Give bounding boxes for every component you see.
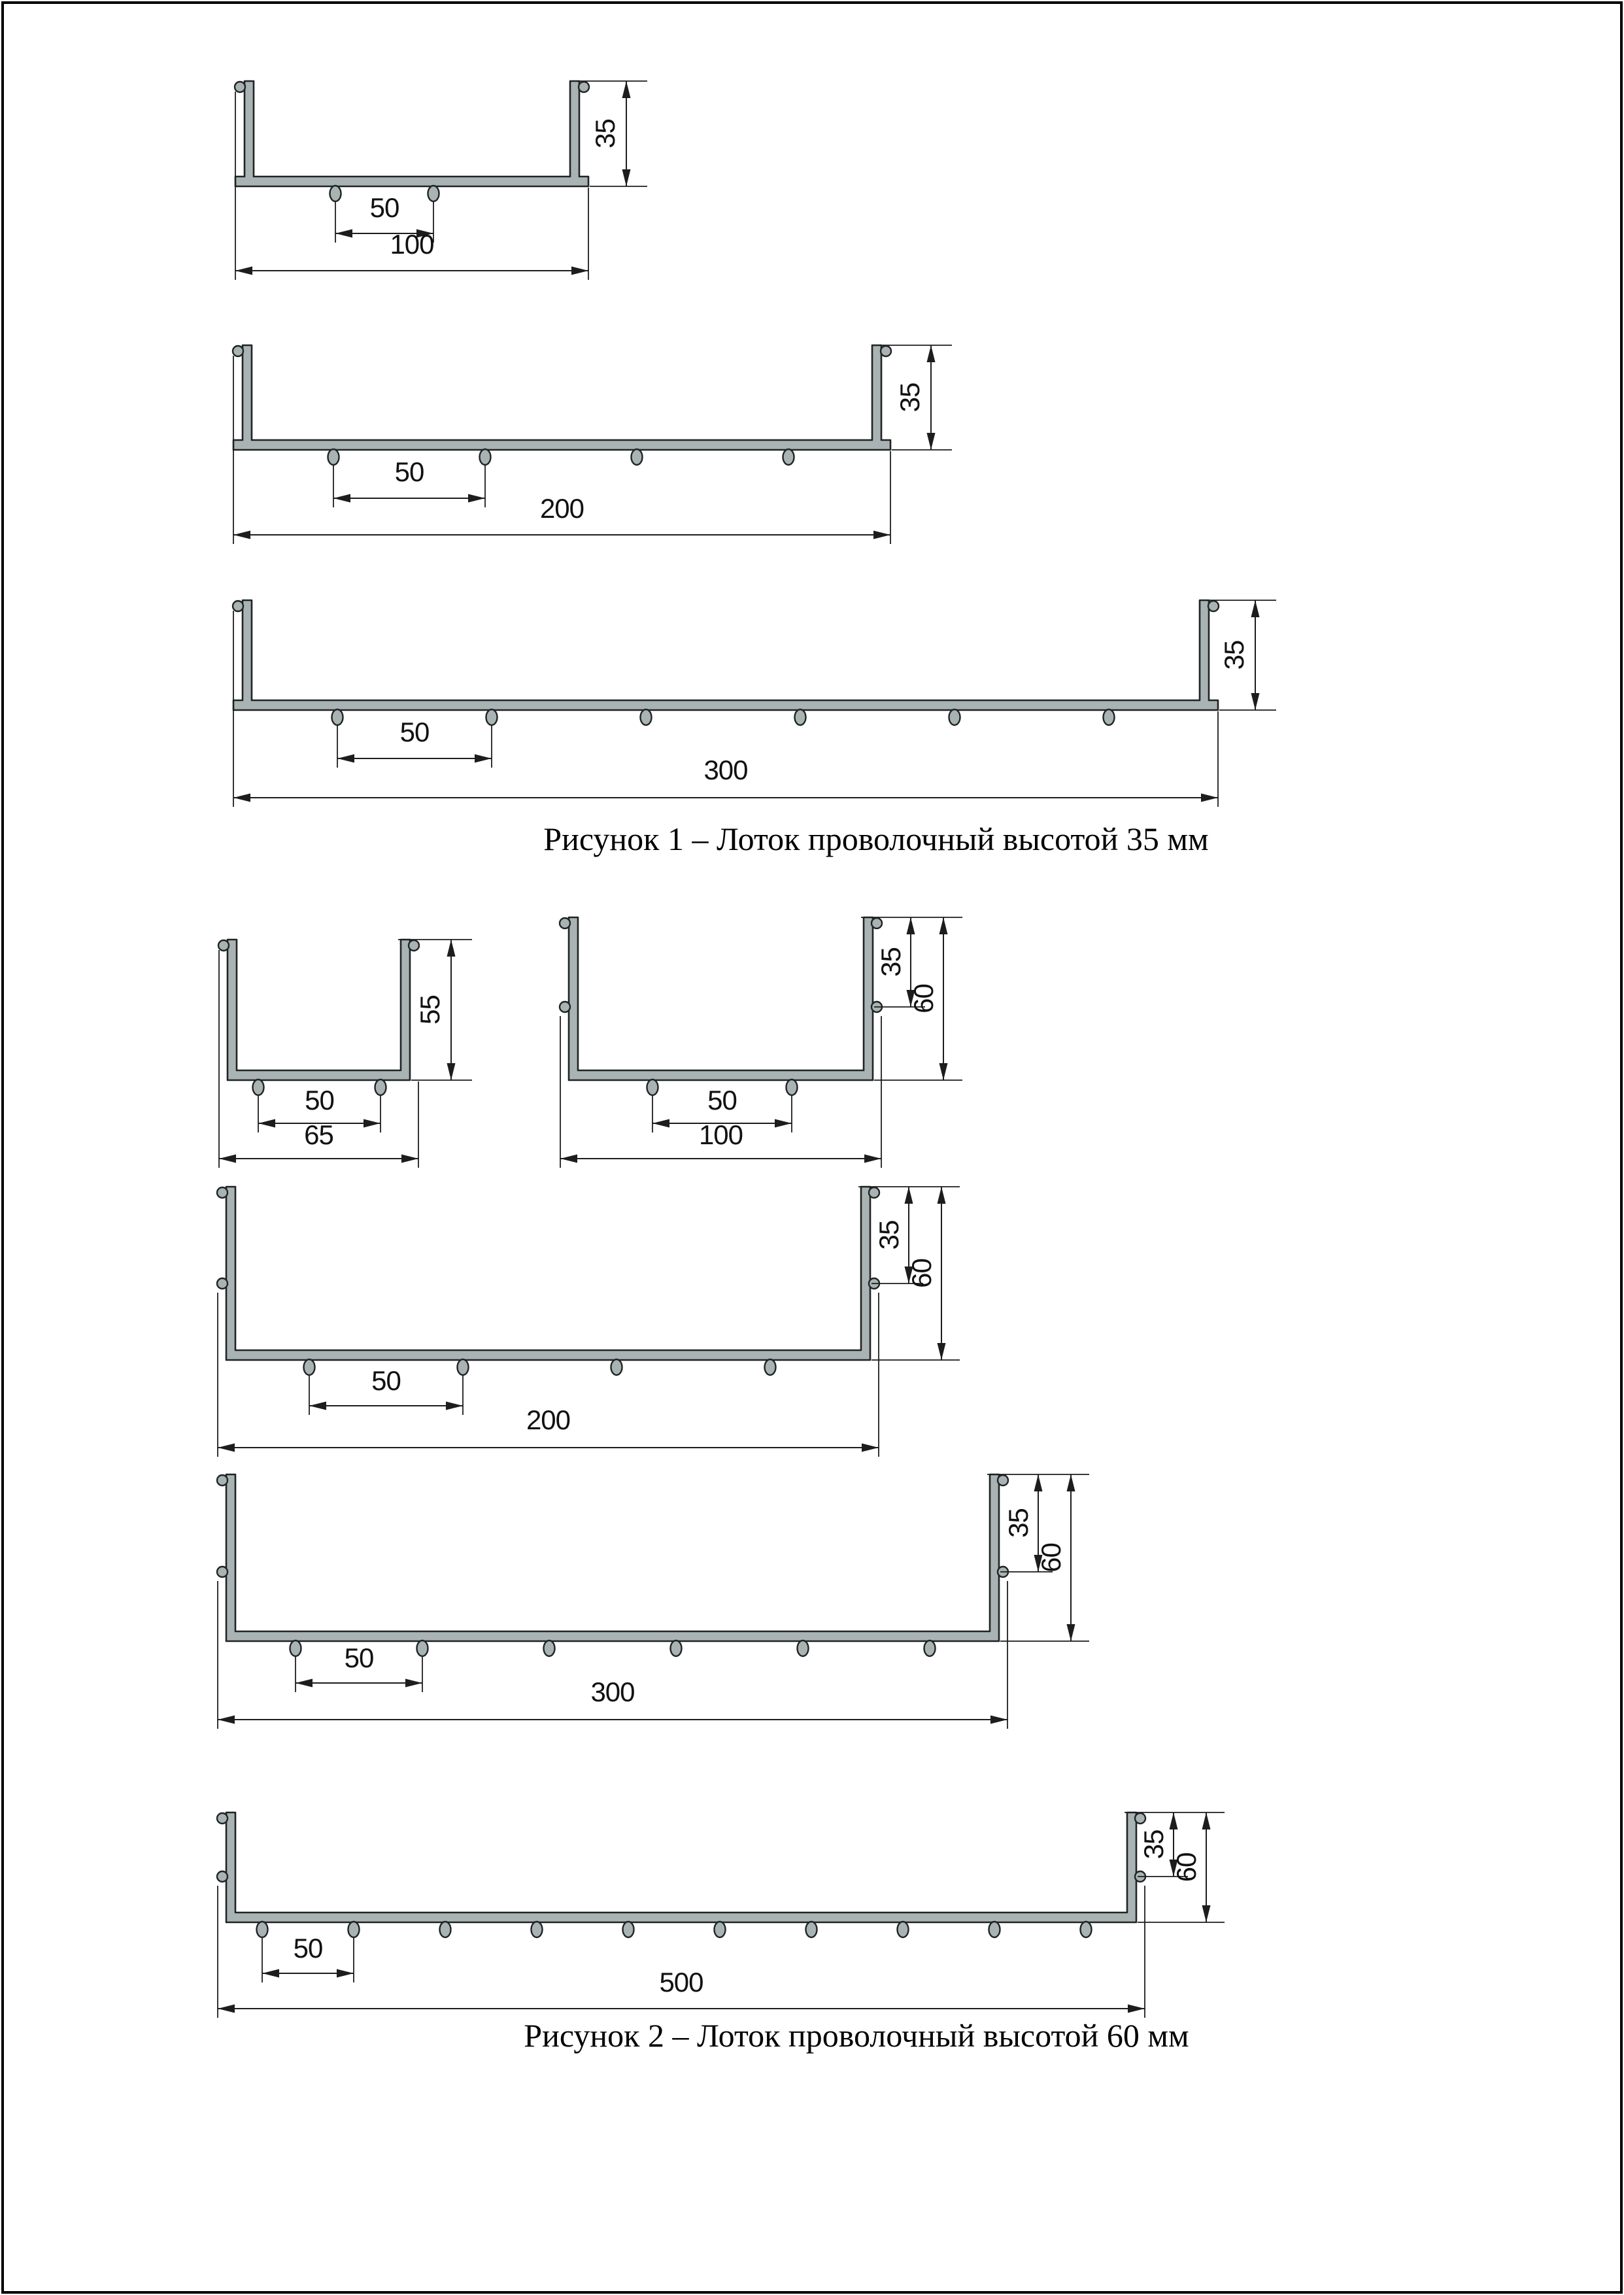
edge-wire (1135, 1813, 1145, 1824)
edge-wire (217, 1475, 228, 1486)
bottom-wire (1104, 709, 1115, 725)
bottom-wire (715, 1922, 726, 1937)
height-dim-label: 35 (1219, 641, 1249, 670)
edge-wire (217, 1813, 228, 1824)
bottom-wire (375, 1079, 386, 1095)
edge-wire (217, 1278, 228, 1289)
edge-wire (560, 918, 570, 928)
edge-wire (233, 346, 243, 356)
height-dim-label: 55 (414, 995, 445, 1025)
arrowhead (938, 1343, 946, 1360)
arrowhead (907, 917, 915, 934)
bottom-wire (949, 709, 960, 725)
width-dim-label: 100 (390, 229, 433, 260)
bottom-wire (671, 1640, 682, 1656)
bottom-wire (647, 1079, 658, 1095)
arrowhead (233, 531, 250, 539)
pitch-dim-label: 50 (400, 717, 430, 747)
tray-body (226, 1187, 870, 1360)
arrowhead (938, 1187, 946, 1204)
profile-tray-35x100: 5010035 (235, 81, 647, 280)
height-outer-dim-label: 60 (906, 1259, 937, 1288)
arrowhead (1034, 1474, 1043, 1491)
profile-tray-55x65: 506555 (218, 940, 472, 1168)
profile-tray-60x500: 505003560 (217, 1812, 1225, 2018)
tray-body (228, 940, 410, 1080)
profile-tray-35x300: 5030035 (233, 600, 1276, 807)
arrowhead (571, 267, 588, 275)
bottom-wire (328, 449, 339, 465)
bottom-wire (253, 1079, 264, 1095)
arrowhead (652, 1119, 669, 1128)
arrowhead (364, 1119, 381, 1128)
bottom-wire (632, 449, 643, 465)
bottom-wire (304, 1359, 315, 1375)
width-dim-label: 100 (699, 1119, 743, 1150)
bottom-wire (458, 1359, 469, 1375)
edge-wire (579, 82, 589, 92)
arrowhead (468, 494, 485, 503)
edge-wire (217, 1187, 228, 1198)
height-outer-dim-label: 60 (908, 984, 939, 1013)
bottom-wire (623, 1922, 634, 1937)
edge-wire (869, 1187, 879, 1198)
bottom-wire (290, 1640, 301, 1656)
pitch-dim-label: 50 (395, 456, 424, 487)
bottom-wire (924, 1640, 936, 1656)
width-dim-label: 65 (304, 1119, 333, 1150)
arrowhead (1067, 1624, 1075, 1641)
arrowhead (927, 345, 936, 362)
height-dim-label: 35 (590, 119, 620, 148)
width-dim-label: 200 (540, 493, 584, 524)
arrowhead (218, 1716, 235, 1724)
bottom-wire (898, 1922, 909, 1937)
bottom-wire (480, 449, 491, 465)
arrowhead (939, 1063, 948, 1080)
bottom-wire (532, 1922, 543, 1937)
arrowhead (333, 494, 350, 503)
bottom-wire (787, 1079, 798, 1095)
bottom-wire (641, 709, 652, 725)
arrowhead (1202, 1905, 1211, 1922)
arrowhead (447, 1063, 456, 1080)
arrowhead (309, 1402, 326, 1410)
profiles-layer: 5010035502003550300355065555010035605020… (217, 81, 1276, 2018)
bottom-wire (486, 709, 498, 725)
arrowhead (218, 2005, 235, 2013)
bottom-wire (440, 1922, 451, 1937)
profile-tray-60x100: 501003560 (560, 917, 962, 1168)
arrowhead (560, 1155, 577, 1163)
width-dim-label: 300 (703, 755, 747, 785)
arrowhead (1251, 600, 1260, 617)
tray-body (226, 1474, 999, 1641)
arrowhead (405, 1679, 422, 1688)
bottom-wire (806, 1922, 817, 1937)
figure2-caption: Рисунок 2 – Лоток проволочный высотой 60… (524, 2017, 1189, 2054)
arrowhead (1067, 1474, 1075, 1491)
bottom-wire (765, 1359, 776, 1375)
pitch-dim-label: 50 (370, 192, 399, 223)
figure1-caption: Рисунок 1 – Лоток проволочный высотой 35… (543, 821, 1208, 857)
arrowhead (622, 81, 631, 98)
bottom-wire (611, 1359, 622, 1375)
arrowhead (862, 1444, 879, 1452)
width-dim-label: 300 (590, 1676, 634, 1707)
height-inner-dim-label: 35 (875, 947, 906, 977)
profile-tray-35x200: 5020035 (233, 345, 952, 544)
edge-wire (998, 1475, 1008, 1486)
arrowhead (262, 1969, 279, 1978)
arrowhead (1128, 2005, 1145, 2013)
bottom-wire (544, 1640, 555, 1656)
arrowhead (219, 1155, 236, 1163)
arrowhead (235, 267, 252, 275)
height-inner-dim-label: 35 (1138, 1830, 1169, 1860)
edge-wire (1208, 601, 1219, 611)
tray-body (235, 81, 588, 186)
edge-wire (881, 346, 891, 356)
pitch-dim-label: 50 (345, 1642, 374, 1673)
arrowhead (335, 229, 352, 238)
arrowhead (939, 917, 948, 934)
edge-wire (871, 918, 882, 928)
edge-wire (217, 1871, 228, 1882)
arrowhead (296, 1679, 313, 1688)
height-outer-dim-label: 60 (1171, 1853, 1202, 1882)
edge-wire (235, 82, 245, 92)
edge-wire (233, 601, 243, 611)
height-dim-label: 35 (894, 383, 925, 413)
bottom-wire (989, 1922, 1000, 1937)
tray-body (226, 1812, 1136, 1922)
tray-body (233, 600, 1218, 710)
edge-wire (560, 1002, 570, 1012)
profile-tray-60x300: 503003560 (217, 1474, 1089, 1729)
arrowhead (218, 1444, 235, 1452)
bottom-wire (417, 1640, 428, 1656)
arrowhead (775, 1119, 792, 1128)
height-inner-dim-label: 35 (1003, 1508, 1034, 1538)
width-dim-label: 500 (659, 1967, 703, 1997)
tray-body (569, 917, 873, 1080)
arrowhead (873, 531, 890, 539)
bottom-wire (795, 709, 806, 725)
arrowhead (864, 1155, 881, 1163)
arrowhead (337, 755, 354, 763)
edge-wire (217, 1567, 228, 1577)
bottom-wire (1081, 1922, 1092, 1937)
bottom-wire (348, 1922, 360, 1937)
technical-drawing: 5010035502003550300355065555010035605020… (0, 0, 1624, 2295)
pitch-dim-label: 50 (294, 1933, 323, 1963)
width-dim-label: 200 (526, 1404, 570, 1435)
bottom-wire (428, 186, 439, 201)
bottom-wire (798, 1640, 809, 1656)
arrowhead (258, 1119, 275, 1128)
pitch-dim-label: 50 (305, 1085, 334, 1115)
arrowhead (1251, 693, 1260, 710)
arrowhead (475, 755, 492, 763)
tray-body (233, 345, 890, 450)
arrowhead (233, 794, 250, 802)
height-inner-dim-label: 35 (873, 1221, 904, 1250)
bottom-wire (783, 449, 794, 465)
arrowhead (990, 1716, 1007, 1724)
arrowhead (905, 1187, 913, 1204)
bottom-wire (257, 1922, 268, 1937)
arrowhead (1201, 794, 1218, 802)
arrowhead (622, 169, 631, 186)
profile-tray-60x200: 502003560 (217, 1187, 960, 1457)
bottom-wire (330, 186, 341, 201)
height-outer-dim-label: 60 (1036, 1543, 1066, 1572)
pitch-dim-label: 50 (371, 1365, 401, 1396)
edge-wire (218, 940, 229, 951)
document-page: 5010035502003550300355065555010035605020… (0, 0, 1624, 2295)
arrowhead (927, 433, 936, 450)
arrowhead (447, 940, 456, 957)
arrowhead (446, 1402, 463, 1410)
pitch-dim-label: 50 (707, 1085, 737, 1115)
arrowhead (1170, 1812, 1178, 1829)
arrowhead (337, 1969, 354, 1978)
arrowhead (1202, 1812, 1211, 1829)
edge-wire (409, 940, 419, 951)
arrowhead (401, 1155, 418, 1163)
bottom-wire (332, 709, 343, 725)
